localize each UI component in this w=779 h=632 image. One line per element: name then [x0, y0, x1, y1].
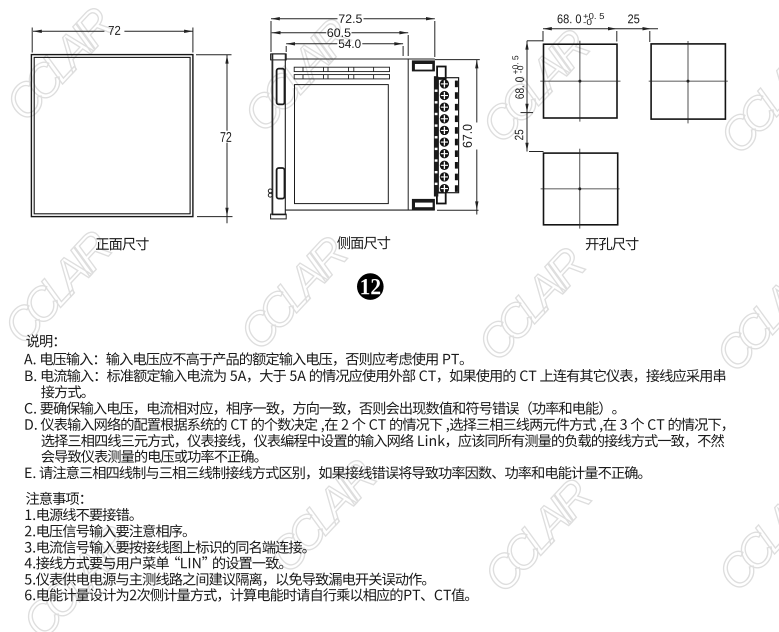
- svg-text:CCLAIR: CCLAIR: [471, 20, 599, 152]
- svg-text:CCLAIR: CCLAIR: [705, 249, 779, 381]
- svg-text:CCLAIR: CCLAIR: [233, 9, 361, 141]
- svg-text:CCLAIR: CCLAIR: [12, 516, 140, 632]
- svg-text:CCLAIR: CCLAIR: [473, 469, 601, 601]
- svg-text:CCLAIR: CCLAIR: [0, 0, 124, 130]
- svg-text:CCLAIR: CCLAIR: [707, 468, 779, 600]
- svg-text:CCLAIR: CCLAIR: [467, 238, 595, 370]
- svg-text:CCLAIR: CCLAIR: [709, 31, 779, 163]
- svg-text:CCLAIR: CCLAIR: [229, 227, 357, 359]
